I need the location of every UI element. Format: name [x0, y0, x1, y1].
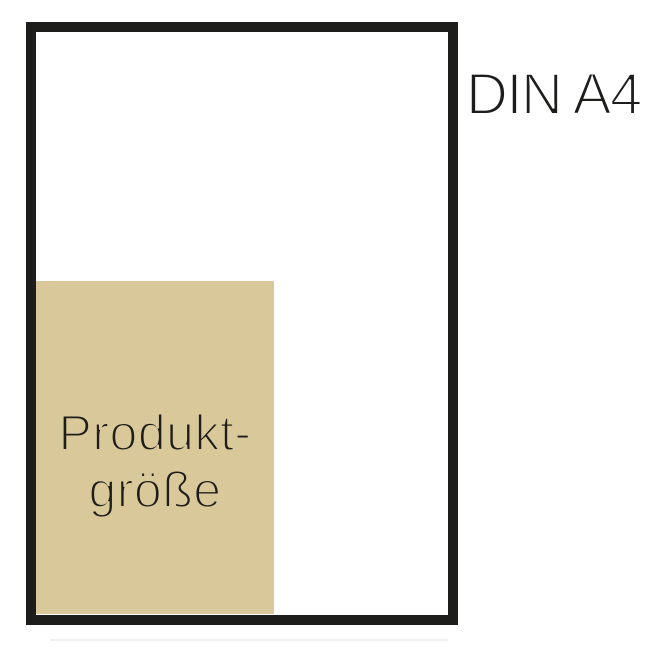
diagram-canvas: Produkt- größe DIN A4 [0, 0, 648, 648]
product-size-label-line1: Produkt- [59, 405, 252, 462]
product-size-label: Produkt- größe [59, 377, 252, 519]
sheet-shadow-line [50, 639, 448, 641]
product-size-rect: Produkt- größe [36, 281, 274, 614]
din-a4-label: DIN A4 [466, 66, 641, 124]
product-size-label-line2: größe [59, 462, 252, 519]
